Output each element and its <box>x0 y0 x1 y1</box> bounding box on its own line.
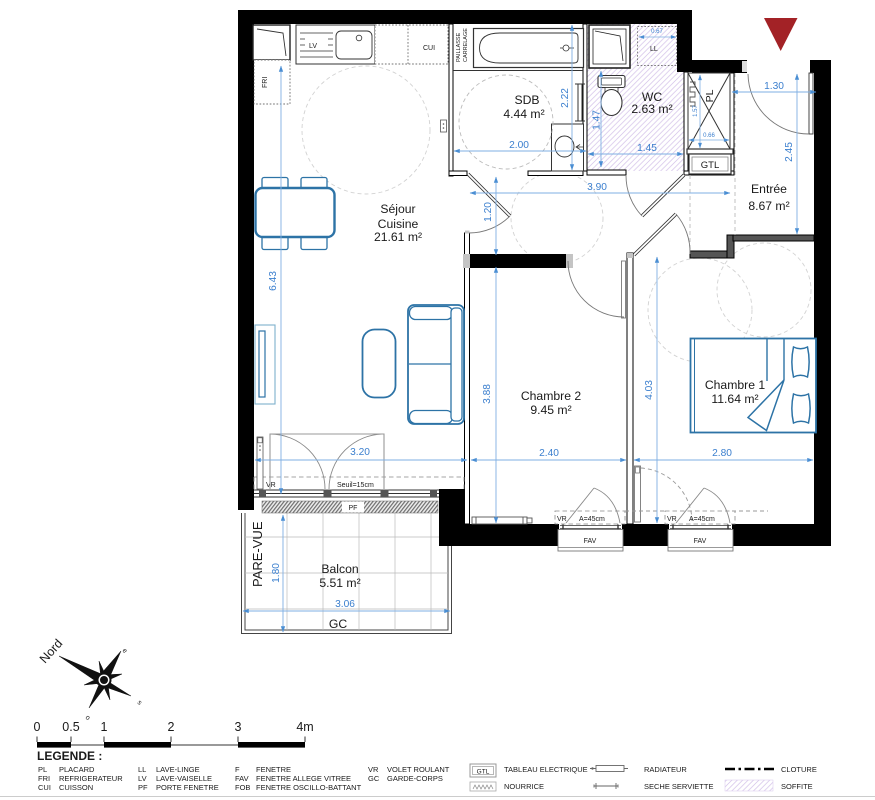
svg-text:CUI: CUI <box>423 45 435 52</box>
svg-text:GC: GC <box>329 617 347 631</box>
svg-text:2.00: 2.00 <box>509 140 529 151</box>
svg-text:FAV: FAV <box>694 538 707 545</box>
svg-text:2.45: 2.45 <box>784 142 795 162</box>
svg-text:VR: VR <box>557 516 567 523</box>
svg-text:4m: 4m <box>296 720 313 734</box>
svg-text:Nord: Nord <box>37 636 66 666</box>
svg-text:2.22: 2.22 <box>560 88 571 108</box>
svg-text:PL: PL <box>704 89 716 102</box>
svg-text:2: 2 <box>168 720 175 734</box>
svg-text:GC: GC <box>368 774 380 783</box>
svg-text:1.47: 1.47 <box>592 110 603 130</box>
svg-text:FENETRE ALLEGE VITREE: FENETRE ALLEGE VITREE <box>256 774 351 783</box>
svg-text:0.66: 0.66 <box>703 133 715 139</box>
svg-text:FAV: FAV <box>235 774 249 783</box>
svg-text:0: 0 <box>34 720 41 734</box>
svg-text:1.30: 1.30 <box>764 81 784 92</box>
svg-text:CARRELAGE: CARRELAGE <box>463 28 469 62</box>
svg-text:1.57: 1.57 <box>693 105 699 117</box>
svg-text:0.67: 0.67 <box>651 29 663 35</box>
svg-text:GTL: GTL <box>477 769 490 776</box>
svg-text:6.43: 6.43 <box>268 271 279 291</box>
svg-text:SOFFITE: SOFFITE <box>781 782 813 791</box>
svg-text:LEGENDE :: LEGENDE : <box>37 749 102 763</box>
svg-text:VR: VR <box>667 516 677 523</box>
svg-text:o: o <box>84 714 92 722</box>
svg-text:GARDE-CORPS: GARDE-CORPS <box>387 774 443 783</box>
svg-text:LL: LL <box>650 46 658 53</box>
svg-text:SDB: SDB <box>514 93 539 107</box>
svg-text:NOURRICE: NOURRICE <box>504 782 544 791</box>
svg-text:SECHE SERVIETTE: SECHE SERVIETTE <box>644 782 713 791</box>
svg-text:GTL: GTL <box>701 160 719 171</box>
svg-text:PORTE FENETRE: PORTE FENETRE <box>156 783 219 792</box>
svg-text:RADIATEUR: RADIATEUR <box>644 765 687 774</box>
svg-text:8.67 m²: 8.67 m² <box>748 199 789 213</box>
svg-text:VOLET ROULANT: VOLET ROULANT <box>387 765 450 774</box>
svg-text:e: e <box>121 647 129 655</box>
svg-text:LV: LV <box>138 774 147 783</box>
svg-text:PARE-VUE: PARE-VUE <box>250 521 265 587</box>
svg-text:A=45cm: A=45cm <box>689 516 715 523</box>
svg-text:REFRIGERATEUR: REFRIGERATEUR <box>59 774 123 783</box>
svg-text:CUISSON: CUISSON <box>59 783 93 792</box>
svg-text:1: 1 <box>101 720 108 734</box>
svg-text:PL: PL <box>38 765 47 774</box>
svg-text:2.80: 2.80 <box>712 448 732 459</box>
svg-text:Chambre 2: Chambre 2 <box>521 389 582 403</box>
svg-text:VR: VR <box>368 765 379 774</box>
svg-text:s: s <box>136 699 144 707</box>
svg-text:FENETRE: FENETRE <box>256 765 291 774</box>
svg-text:LL: LL <box>138 765 146 774</box>
svg-text:Entrée: Entrée <box>751 182 787 196</box>
svg-text:FRI: FRI <box>262 77 269 88</box>
svg-text:5.51 m²: 5.51 m² <box>319 576 360 590</box>
svg-text:Chambre 1: Chambre 1 <box>705 378 766 392</box>
svg-text:A=45cm: A=45cm <box>579 516 605 523</box>
svg-text:LAVE-VAISELLE: LAVE-VAISELLE <box>156 774 212 783</box>
svg-text:3.20: 3.20 <box>350 447 370 458</box>
svg-text:2.40: 2.40 <box>539 448 559 459</box>
svg-text:LV: LV <box>309 43 317 50</box>
svg-text:3.06: 3.06 <box>335 599 355 610</box>
svg-text:Cuisine: Cuisine <box>378 217 419 231</box>
svg-text:3.88: 3.88 <box>482 384 493 404</box>
svg-text:1.80: 1.80 <box>271 563 282 583</box>
svg-text:FOB: FOB <box>235 783 250 792</box>
svg-text:1.45: 1.45 <box>637 143 657 154</box>
svg-text:LAVE-LINGE: LAVE-LINGE <box>156 765 200 774</box>
svg-text:2.63 m²: 2.63 m² <box>631 102 672 116</box>
svg-text:4.44 m²: 4.44 m² <box>503 107 544 121</box>
svg-text:CUI: CUI <box>38 783 51 792</box>
svg-text:CLOTURE: CLOTURE <box>781 765 817 774</box>
svg-text:PF: PF <box>349 505 358 512</box>
svg-text:1.20: 1.20 <box>483 202 494 222</box>
svg-text:FAV: FAV <box>584 538 597 545</box>
svg-text:21.61 m²: 21.61 m² <box>374 230 422 244</box>
svg-text:FENETRE OSCILLO-BATTANT: FENETRE OSCILLO-BATTANT <box>256 783 362 792</box>
svg-text:3: 3 <box>235 720 242 734</box>
svg-text:3.90: 3.90 <box>587 182 607 193</box>
svg-text:4.03: 4.03 <box>644 380 655 400</box>
svg-text:Séjour: Séjour <box>380 202 415 216</box>
svg-text:Balcon: Balcon <box>321 562 358 576</box>
svg-text:FRI: FRI <box>38 774 50 783</box>
svg-text:9.45 m²: 9.45 m² <box>530 403 571 417</box>
svg-text:0.5: 0.5 <box>62 720 79 734</box>
svg-text:PF: PF <box>138 783 148 792</box>
svg-text:Seuil=15cm: Seuil=15cm <box>337 482 374 489</box>
svg-text:PLACARD: PLACARD <box>59 765 95 774</box>
svg-text:VR: VR <box>266 482 276 489</box>
svg-text:11.64 m²: 11.64 m² <box>711 392 758 406</box>
svg-text:F: F <box>235 765 240 774</box>
svg-text:PAILLASSE: PAILLASSE <box>456 32 462 62</box>
svg-text:TABLEAU ELECTRIQUE: TABLEAU ELECTRIQUE <box>504 765 588 774</box>
